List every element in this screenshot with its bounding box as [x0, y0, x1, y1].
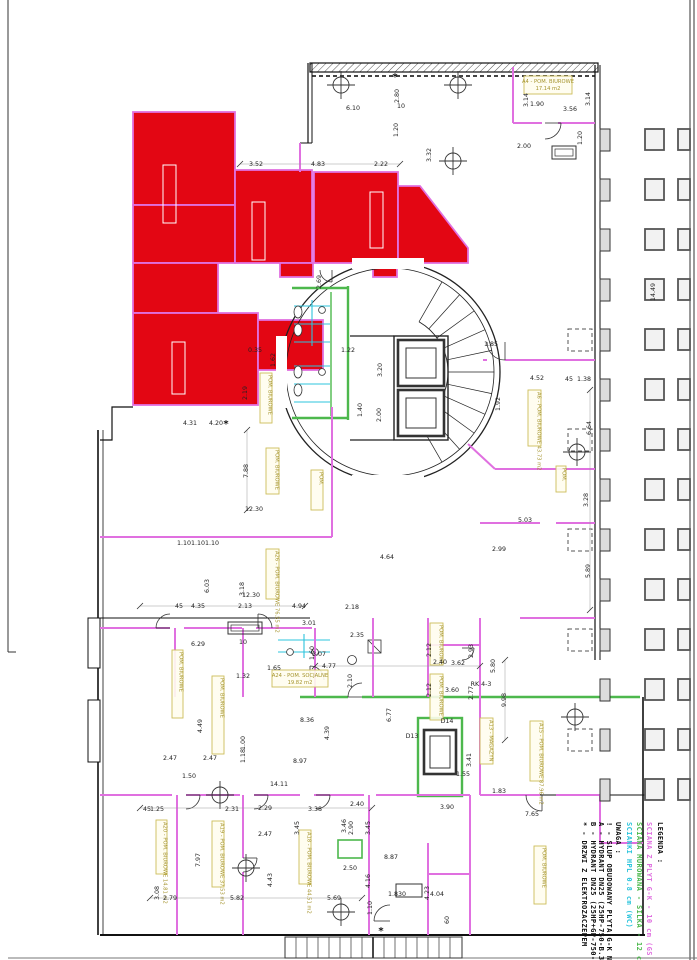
dimension-label: 6.64	[586, 421, 593, 435]
door-arc	[545, 123, 561, 139]
dimension-label: 1.32	[236, 673, 250, 680]
column	[678, 629, 690, 650]
dimension-label: 4.39	[324, 726, 331, 740]
dimension-label: 3.41	[466, 753, 473, 767]
dimension-label: 1.10	[191, 540, 205, 547]
room-label-area: 17.14 m2	[536, 86, 561, 92]
dimension-label: 1.50	[182, 773, 196, 780]
dimension-label: 3.32	[426, 148, 433, 162]
room-label-text: A13 - MAGAZYN	[488, 720, 494, 762]
dimension-label: 2.10	[347, 674, 354, 688]
dashed-column	[568, 629, 592, 651]
dimension-label: 2.22	[374, 161, 388, 168]
dimension-label: 8.97	[293, 758, 307, 765]
dimension-label: 4.49	[197, 719, 204, 733]
room-label-text: POM. BIUROWE	[267, 375, 273, 415]
dimension-label: 2.40	[433, 659, 447, 666]
dimension-label: 3.56	[563, 106, 577, 113]
column	[645, 129, 664, 150]
dimension-label: 3.60	[445, 687, 459, 694]
column	[645, 629, 664, 650]
room-label: A19 - POM. BIUROWE 37.53 m2	[212, 821, 225, 905]
room-label: POM. BIUROWE	[534, 846, 547, 904]
dimension-label: 4.43	[267, 873, 274, 887]
pilaster	[600, 379, 610, 401]
elevator-shaft-1	[398, 340, 444, 386]
wall-segment	[468, 444, 495, 469]
room-label-text: A26 - POM. BIUROWE 76.55 m2	[274, 551, 280, 633]
column	[645, 779, 664, 800]
dashed-column	[568, 729, 592, 751]
column	[645, 329, 664, 350]
pilaster	[600, 179, 610, 201]
circular-core	[276, 258, 500, 486]
room-label: A24 - POM. SOCJALNE19.82 m2	[272, 670, 328, 687]
door-arc	[374, 905, 390, 921]
pilaster	[600, 629, 610, 651]
legend-item-gk: SCIANA Z PLYT G-K - 10 cm (GS 100)	[645, 822, 653, 960]
dimension-label: 3.45	[294, 821, 301, 835]
dimension-label: 60	[444, 916, 451, 924]
dimension-label: 3.01	[302, 620, 316, 627]
dimension-label: 8.87	[384, 854, 398, 861]
dimension-label: 1.20	[393, 123, 400, 137]
dimension-label: 1.55	[456, 771, 470, 778]
room-label: A15 - POM. BIUROWE 87.96 m2	[530, 721, 544, 805]
dashed-column	[568, 329, 592, 351]
dashed-column	[568, 529, 592, 551]
stair-tread	[437, 311, 474, 338]
dimension-label: 1.00	[240, 736, 247, 750]
dimension-label: 4.52	[530, 375, 544, 382]
dimension-label: 3.18	[239, 582, 246, 596]
dimension-label: 45	[565, 376, 573, 383]
dimension-label: 2.77	[468, 686, 475, 700]
dimension-label: 3.45	[365, 821, 372, 835]
dimension-label: 6.10	[346, 105, 360, 112]
room-label-text: A6 - POM. BIUROWE 43.73 m2	[536, 392, 542, 471]
dimension-label: 2.18	[345, 604, 359, 611]
dimension-label: 1.65	[267, 665, 281, 672]
pilaster	[600, 479, 610, 501]
pilaster	[600, 279, 610, 301]
column	[645, 529, 664, 550]
dimension-label: 2.12	[426, 683, 433, 697]
column	[678, 229, 690, 250]
dimension-label: 3.08	[154, 886, 161, 900]
room-label: A6 - POM. BIUROWE 43.73 m2	[528, 390, 542, 471]
column	[645, 429, 664, 450]
dimension-label: 9.98	[501, 693, 508, 707]
room-label: POM. BIUROWE	[260, 373, 273, 423]
room-label: A4 - POM. BIUROWE17.14 m2	[522, 76, 574, 94]
room-label-text: A19 - POM. BIUROWE 37.53 m2	[219, 823, 225, 905]
dimension-label: 2.50	[343, 865, 357, 872]
elevator-shaft-2	[398, 390, 444, 436]
dimension-label: 2.31	[225, 806, 239, 813]
pilaster	[600, 779, 610, 801]
dimension-label: 1.18	[240, 749, 247, 763]
exterior-stair	[285, 937, 462, 958]
room-label: A13 - MAGAZYN	[480, 718, 494, 764]
dimension-label: 3.07	[312, 651, 326, 658]
room-label-text: POM.	[561, 468, 567, 482]
legend: LEGENDA : SCIANA Z PLYT G-K - 10 cm (GS …	[625, 822, 664, 960]
room-label: POM. BIUROWE	[172, 650, 184, 718]
stair-tread	[443, 330, 485, 349]
dimension-label: 7.88	[243, 464, 250, 478]
dimension-label: 3.14	[523, 93, 530, 107]
dimension-label: 2.47	[163, 755, 177, 762]
pilaster	[600, 429, 610, 451]
dimension-label: 5.03	[518, 517, 532, 524]
dimension-label: 3.62	[451, 660, 465, 667]
dimension-label: 2.40	[350, 801, 364, 808]
pilaster	[600, 679, 610, 701]
notes-title: UWAGA :	[614, 822, 622, 854]
dimension-label: 1.38	[577, 376, 591, 383]
dimension-label: 7.97	[195, 853, 202, 867]
dimension-label: 1.830	[388, 891, 406, 898]
column	[678, 529, 690, 550]
pilaster	[600, 579, 610, 601]
dimension-label: 4.20	[209, 420, 223, 427]
dimension-label: 1.25	[150, 806, 164, 813]
door-arc	[156, 614, 170, 628]
note-hydrant-b: B - HYDRANT DN25 (25HP+GP-750-B.30 ) 2	[589, 822, 597, 960]
dimension-label: 14.49	[650, 283, 657, 301]
dimension-label: 5.89	[585, 564, 592, 578]
note-slup: ! - SLUP OBUDOWANY PLYTA G-K NA STEL.	[605, 822, 613, 960]
dimension-label: 4.35	[191, 603, 205, 610]
electro-door-symbol: *	[378, 926, 384, 937]
dimension-label: 1.40	[357, 403, 364, 417]
pilaster	[600, 729, 610, 751]
dimension-label: 5.80	[490, 659, 497, 673]
dimension-label: 2.29	[258, 805, 272, 812]
column	[678, 779, 690, 800]
column	[645, 729, 664, 750]
dimension-label: 45	[175, 603, 183, 610]
column	[645, 579, 664, 600]
floor-plan-drawing: A4 - POM. BIUROWE17.14 m2A24 - POM. SOCJ…	[0, 0, 697, 960]
dimension-label: 2.47	[258, 831, 272, 838]
dimension-label: 1.10	[367, 901, 374, 915]
door-arc	[186, 795, 200, 809]
notes-block: UWAGA : ! - SLUP OBUDOWANY PLYTA G-K NA …	[580, 822, 622, 960]
stair-tread	[429, 295, 460, 329]
dimension-label: 2.93	[468, 644, 475, 658]
stair-tread	[447, 350, 492, 360]
column	[678, 679, 690, 700]
stair-treads	[296, 937, 450, 958]
room-label: POM. BIUROWE	[212, 676, 225, 754]
pilaster	[600, 229, 610, 251]
dimension-label: 4.04	[430, 891, 444, 898]
dimension-label: 3.90	[440, 804, 454, 811]
legend-item-hpl: SCIANKI HPL 0.8 cm (WC)	[625, 822, 633, 928]
dimension-label: 14.11	[270, 781, 288, 788]
dimension-label: 3.20	[377, 363, 384, 377]
column	[678, 479, 690, 500]
dimension-label: 2.99	[492, 546, 506, 553]
dimension-label: 2.90	[348, 821, 355, 835]
pilaster	[600, 329, 610, 351]
room-label-text: POM. BIUROWE	[219, 678, 225, 718]
dimension-label: 3.38	[308, 806, 322, 813]
dimension-label: 4.94	[292, 603, 306, 610]
dimension-label: 2.19	[242, 386, 249, 400]
dimension-label: 3.46	[341, 819, 348, 833]
dimension-label: 2.80	[394, 89, 401, 103]
dimension-label: 8.36	[300, 717, 314, 724]
column	[678, 729, 690, 750]
dimension-label: 1.20	[577, 131, 584, 145]
dimension-label: 2.00	[517, 143, 531, 150]
room-label-area: 19.82 m2	[288, 680, 313, 686]
dimension-label: 1.92	[495, 397, 502, 411]
legend-item-silka: SCIANA MUROWANA - SILKA - 12 cm	[635, 822, 643, 960]
room-label-text: POM.	[318, 472, 324, 486]
room-label-text: A4 - POM. BIUROWE	[522, 79, 574, 85]
dimension-label: 3.52	[249, 161, 263, 168]
dimension-label: 2.00	[376, 408, 383, 422]
column	[645, 229, 664, 250]
dimension-label: RK 4-3	[471, 681, 492, 688]
dimension-label: 1.10	[205, 540, 219, 547]
column	[678, 329, 690, 350]
dimension-label: 0.35	[248, 347, 262, 354]
column	[678, 379, 690, 400]
dimension-label: 10	[397, 103, 405, 110]
elevator-shaft-3	[424, 730, 456, 774]
electro-door-symbol: *	[392, 72, 398, 83]
note-hydrant-a: A - HYDRANT DN25 (25HP-750-B.30: 25 X	[597, 822, 605, 960]
column	[678, 179, 690, 200]
dimension-label: 2.12	[426, 643, 433, 657]
room-label-text: A15 - POM. BIUROWE 87.96 m2	[538, 723, 544, 805]
dimension-label: 2.47	[203, 755, 217, 762]
dimension-label: 1.85	[484, 341, 498, 348]
dimension-label: 1.83	[492, 788, 506, 795]
door-arc	[258, 614, 272, 628]
room-label: A26 - POM. BIUROWE 76.55 m2	[266, 549, 280, 633]
room-label-text: POM. BIUROWE	[541, 848, 547, 888]
dimension-label: 6.77	[386, 708, 393, 722]
column	[678, 129, 690, 150]
room-label-text: A20 - POM. BIUROWE 14.81 m2	[162, 822, 168, 904]
dimension-label: 5.69	[327, 895, 341, 902]
dimension-label: 2.35	[350, 632, 364, 639]
dimension-label: 1.90	[530, 101, 544, 108]
column	[645, 379, 664, 400]
legend-title: LEGENDA :	[656, 822, 664, 864]
room-label-text: POM. BIUROWE	[438, 676, 444, 716]
dimension-label: 2.69	[316, 275, 323, 289]
column	[678, 579, 690, 600]
column	[645, 179, 664, 200]
dimension-label: 4.16	[365, 874, 372, 888]
floorplan-sheet: A4 - POM. BIUROWE17.14 m2A24 - POM. SOCJ…	[0, 0, 697, 960]
pilaster	[600, 529, 610, 551]
dimension-label: D14	[441, 718, 454, 725]
column-rows	[568, 129, 690, 801]
room-label: POM. BIUROWE	[266, 448, 280, 494]
room-label: POM.	[311, 470, 324, 510]
stair-tread	[447, 384, 492, 394]
pilaster	[600, 129, 610, 151]
column	[645, 479, 664, 500]
dimension-label: 1.62	[270, 353, 277, 367]
column	[678, 429, 690, 450]
stair-tread	[443, 396, 485, 415]
dimension-label: 3.14	[585, 92, 592, 106]
dimension-label: 1.10	[177, 540, 191, 547]
room-label-text: POM. BIUROWE	[178, 652, 184, 692]
room-label-text: A18 - POM. BIUROWE 44.51 m2	[306, 832, 312, 914]
room-label: A18 - POM. BIUROWE 44.51 m2	[299, 830, 312, 914]
column	[645, 679, 664, 700]
room-label-text: A24 - POM. SOCJALNE	[272, 673, 328, 679]
dimension-label: 4.31	[183, 420, 197, 427]
dimension-label: D13	[406, 733, 419, 740]
dimension-label: 6.29	[191, 641, 205, 648]
dimension-label: 10	[239, 639, 247, 646]
dimension-label: 7.65	[525, 811, 539, 818]
dimension-label: 4.83	[311, 161, 325, 168]
dimension-label: 5.82	[230, 895, 244, 902]
dimension-label: 3.28	[583, 493, 590, 507]
dimension-label: 2.13	[238, 603, 252, 610]
electro-door-symbol: *	[223, 419, 229, 430]
stair-tread	[419, 282, 442, 322]
dimension-label: 6.03	[204, 579, 211, 593]
dimension-label: 4.77	[322, 663, 336, 670]
room-label: POM.	[556, 466, 567, 492]
note-door: * - DRZWI Z ELEKTROZACZEPEM	[580, 822, 588, 947]
room-label-text: POM. BIUROWE	[274, 450, 280, 490]
dimension-label: 4.64	[380, 554, 394, 561]
column	[678, 279, 690, 300]
dimension-label: 12.30	[245, 506, 263, 513]
dimension-label: 2.79	[163, 895, 177, 902]
dimension-label: 1.22	[341, 347, 355, 354]
